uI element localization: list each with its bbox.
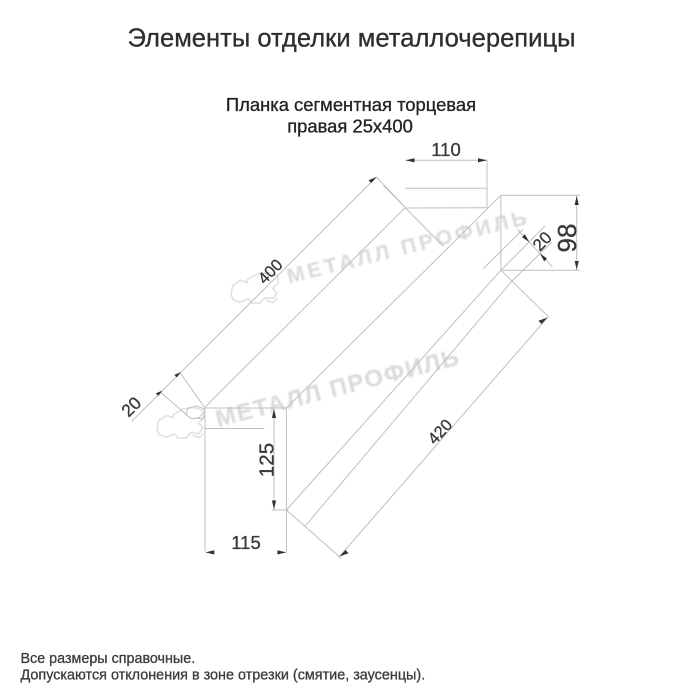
svg-text:Элементы отделки металлочерепи: Элементы отделки металлочерепицы xyxy=(127,25,575,53)
svg-text:115: 115 xyxy=(231,532,261,553)
svg-text:Планка сегментная торцевая: Планка сегментная торцевая xyxy=(226,94,476,115)
svg-text:125: 125 xyxy=(256,443,279,477)
svg-text:правая 25х400: правая 25х400 xyxy=(287,116,413,137)
svg-text:400: 400 xyxy=(255,256,287,288)
svg-text:98: 98 xyxy=(552,224,582,253)
svg-text:МЕТАЛЛ ПРОФИЛЬ: МЕТАЛЛ ПРОФИЛЬ xyxy=(285,206,533,289)
svg-text:Допускаются отклонения в зоне: Допускаются отклонения в зоне отрезки (с… xyxy=(21,668,426,684)
svg-text:420: 420 xyxy=(424,416,456,448)
svg-text:110: 110 xyxy=(431,139,461,160)
svg-text:20: 20 xyxy=(117,393,145,421)
svg-text:Все размеры справочные.: Все размеры справочные. xyxy=(21,651,196,667)
